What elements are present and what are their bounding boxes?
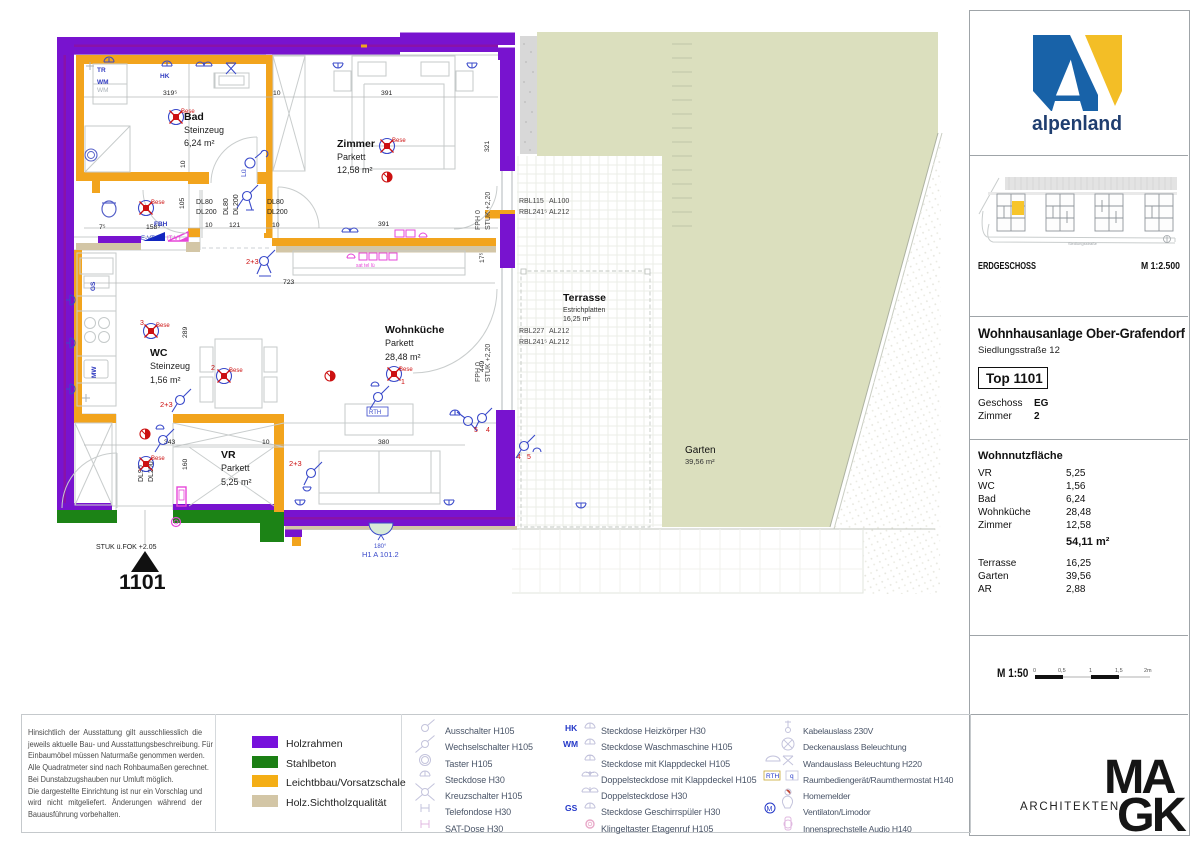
svg-text:2: 2 <box>211 365 215 372</box>
svg-text:DL80: DL80 <box>223 198 230 215</box>
svg-text:5: 5 <box>474 427 478 434</box>
svg-text:3: 3 <box>140 320 144 327</box>
svg-text:Bese: Bese <box>181 109 195 115</box>
svg-text:TR: TR <box>97 67 106 74</box>
svg-text:VR: VR <box>221 449 236 461</box>
svg-text:17⁵: 17⁵ <box>479 252 486 263</box>
svg-text:2+3: 2+3 <box>246 257 259 266</box>
svg-text:RBL227: RBL227 <box>519 328 544 335</box>
svg-text:4: 4 <box>517 454 521 461</box>
svg-text:STUK +2,20: STUK +2,20 <box>485 192 492 230</box>
svg-text:160: 160 <box>182 458 189 470</box>
svg-text:ERDGESCHOSS: ERDGESCHOSS <box>978 261 1036 272</box>
svg-text:321: 321 <box>484 140 491 152</box>
svg-text:Zimmer: Zimmer <box>337 138 375 150</box>
svg-text:Bese: Bese <box>392 138 406 144</box>
svg-text:DL80: DL80 <box>196 199 213 206</box>
svg-text:Bese: Bese <box>151 200 165 206</box>
svg-text:343: 343 <box>164 439 176 446</box>
svg-text:Parkett: Parkett <box>385 338 414 348</box>
svg-text:AL212: AL212 <box>549 209 569 216</box>
svg-text:723: 723 <box>283 279 295 286</box>
svg-text:121: 121 <box>229 222 241 229</box>
svg-text:12,58 m²: 12,58 m² <box>337 165 373 175</box>
svg-text:RBL241⁵: RBL241⁵ <box>519 209 547 216</box>
svg-text:Bese: Bese <box>399 367 413 373</box>
svg-text:1,5: 1,5 <box>1115 668 1123 674</box>
svg-text:M: M <box>767 806 773 813</box>
svg-text:2+3: 2+3 <box>289 459 302 468</box>
svg-text:28,48 m²: 28,48 m² <box>385 352 421 362</box>
svg-text:10: 10 <box>272 222 280 229</box>
svg-text:Steinzeug: Steinzeug <box>184 125 224 135</box>
svg-text:16,25 m²: 16,25 m² <box>563 316 591 323</box>
svg-text:WM: WM <box>97 87 109 94</box>
svg-text:E-VT: E-VT <box>141 236 155 242</box>
svg-text:GS: GS <box>565 803 578 813</box>
svg-text:289: 289 <box>182 326 189 338</box>
svg-text:MW: MW <box>91 366 98 378</box>
svg-text:Lü: Lü <box>241 169 248 177</box>
svg-text:10: 10 <box>262 439 270 446</box>
svg-text:Steinzeug: Steinzeug <box>150 361 190 371</box>
svg-text:RTH: RTH <box>766 773 780 780</box>
svg-text:105: 105 <box>179 197 186 209</box>
svg-text:Bese: Bese <box>156 323 170 329</box>
svg-text:IT-VT: IT-VT <box>167 236 182 242</box>
svg-text:Parkett: Parkett <box>221 463 250 473</box>
svg-text:0,5: 0,5 <box>1058 668 1066 674</box>
svg-text:1: 1 <box>401 379 405 386</box>
svg-text:alpenland: alpenland <box>1032 113 1122 135</box>
svg-text:DL200: DL200 <box>196 209 217 216</box>
svg-text:Estrichplatten: Estrichplatten <box>563 307 606 314</box>
svg-text:5,25 m²: 5,25 m² <box>221 477 252 487</box>
svg-text:319⁵: 319⁵ <box>163 90 177 97</box>
svg-text:q: q <box>790 773 794 780</box>
svg-text:10: 10 <box>205 222 213 229</box>
svg-text:5: 5 <box>527 454 531 461</box>
svg-text:4: 4 <box>486 427 490 434</box>
svg-text:391: 391 <box>378 221 390 228</box>
svg-text:39,56 m²: 39,56 m² <box>685 457 715 466</box>
svg-text:WC: WC <box>150 347 168 359</box>
svg-text:Parkett: Parkett <box>337 152 366 162</box>
svg-text:Bese: Bese <box>151 456 165 462</box>
svg-text:M 1:2.500: M 1:2.500 <box>1141 261 1180 272</box>
svg-text:7⁵: 7⁵ <box>99 224 106 231</box>
svg-text:DL80: DL80 <box>267 199 284 206</box>
svg-text:0: 0 <box>1033 668 1036 674</box>
svg-text:STUK ü.FOK +2.05: STUK ü.FOK +2.05 <box>96 544 157 551</box>
svg-text:WM: WM <box>97 79 109 86</box>
svg-text:AL100: AL100 <box>549 198 569 205</box>
svg-text:Wohnküche: Wohnküche <box>385 324 444 336</box>
svg-text:380: 380 <box>378 439 390 446</box>
svg-text:FPH 0: FPH 0 <box>475 210 482 230</box>
svg-text:WM: WM <box>563 739 578 749</box>
svg-text:FBH: FBH <box>154 221 168 228</box>
svg-text:10: 10 <box>273 90 281 97</box>
svg-text:6,24 m²: 6,24 m² <box>184 138 215 148</box>
svg-text:AL212: AL212 <box>549 339 569 346</box>
svg-text:Garten: Garten <box>685 445 716 456</box>
svg-text:Terrasse: Terrasse <box>563 292 606 304</box>
svg-text:10: 10 <box>180 160 187 168</box>
svg-text:2+3: 2+3 <box>160 400 173 409</box>
svg-text:RBL115: RBL115 <box>519 198 544 205</box>
svg-text:RTH: RTH <box>369 410 381 416</box>
svg-text:Siedlungsstraße: Siedlungsstraße <box>1068 241 1098 246</box>
svg-text:HK: HK <box>565 723 578 733</box>
svg-text:HK: HK <box>160 73 170 80</box>
svg-text:1: 1 <box>1089 668 1092 674</box>
svg-text:sat tel lü: sat tel lü <box>356 263 375 269</box>
svg-text:RBL241⁵: RBL241⁵ <box>519 339 547 346</box>
svg-text:1,56 m²: 1,56 m² <box>150 375 181 385</box>
svg-text:2m: 2m <box>1144 668 1152 674</box>
svg-text:Bese: Bese <box>229 368 243 374</box>
svg-text:391: 391 <box>381 90 393 97</box>
svg-text:STUK +2,20: STUK +2,20 <box>485 344 492 382</box>
svg-text:AL212: AL212 <box>549 328 569 335</box>
svg-text:H1 A 101.2: H1 A 101.2 <box>362 550 399 559</box>
svg-text:FPH 0: FPH 0 <box>475 362 482 382</box>
svg-text:DL200: DL200 <box>267 209 288 216</box>
svg-text:1101: 1101 <box>119 570 166 594</box>
svg-text:GS: GS <box>90 281 97 291</box>
